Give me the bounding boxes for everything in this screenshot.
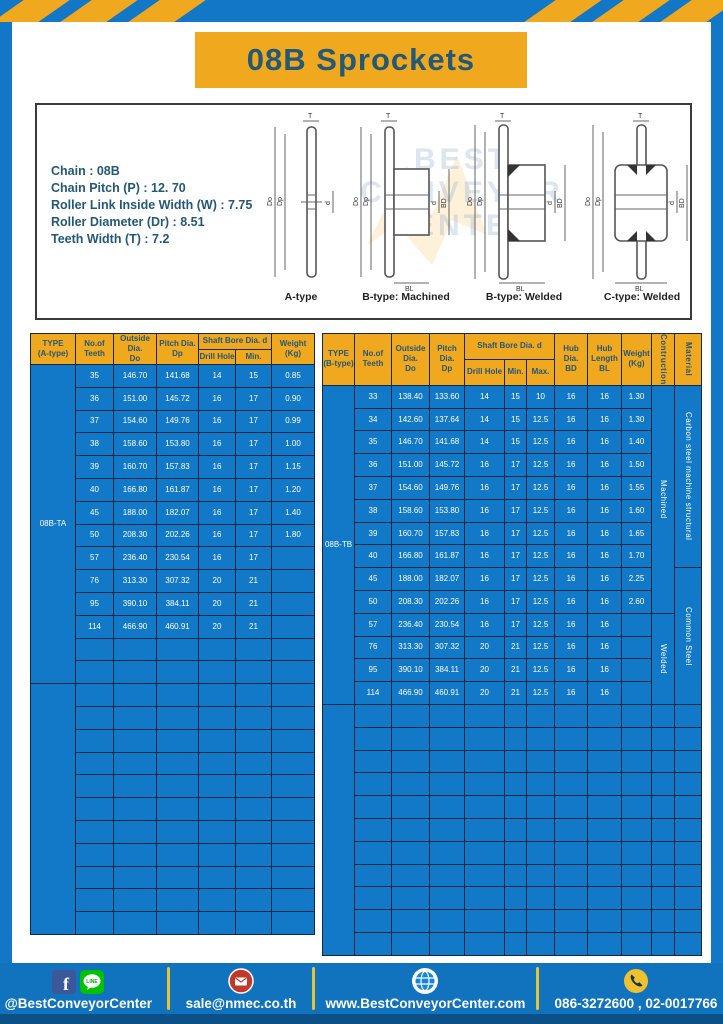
data-cell — [527, 773, 555, 796]
data-cell: 16 — [465, 477, 505, 500]
data-cell — [505, 750, 527, 773]
data-cell: 16 — [555, 499, 588, 522]
data-cell — [588, 796, 622, 819]
data-cell — [76, 820, 114, 843]
data-cell — [236, 820, 272, 843]
data-cell — [430, 932, 465, 955]
data-cell — [355, 704, 392, 727]
data-cell: 384.11 — [157, 592, 199, 615]
diagram-label: B-type: Machined — [362, 291, 450, 303]
data-cell — [157, 889, 199, 912]
data-cell: 17 — [505, 499, 527, 522]
data-cell — [588, 750, 622, 773]
data-cell — [505, 773, 527, 796]
data-cell: 16 — [555, 613, 588, 636]
data-cell: 15 — [505, 385, 527, 408]
data-cell — [236, 866, 272, 889]
data-cell: 16 — [465, 568, 505, 591]
svg-text:d: d — [325, 201, 332, 205]
footer-divider — [312, 967, 315, 1010]
data-cell: 12.5 — [527, 682, 555, 705]
data-cell — [675, 910, 702, 933]
chain-specs: Chain : 08B Chain Pitch (P) : 12. 70 Rol… — [51, 163, 252, 248]
data-cell — [272, 752, 315, 775]
bottom-accent-strip — [0, 1014, 723, 1024]
data-cell: 313.30 — [114, 570, 157, 593]
data-cell — [199, 661, 236, 684]
data-cell — [675, 887, 702, 910]
data-cell: 50 — [76, 524, 114, 547]
data-cell: 17 — [505, 568, 527, 591]
data-cell: 15 — [505, 431, 527, 454]
data-cell — [76, 752, 114, 775]
data-cell — [355, 750, 392, 773]
svg-text:T: T — [386, 113, 391, 120]
diagram-b-type-welded: T Do Dp d BD BL — [465, 111, 583, 311]
data-cell — [236, 798, 272, 821]
footer-divider — [536, 967, 539, 1010]
phone-numbers: 086-3272600 , 02-0017766 — [555, 996, 718, 1011]
data-cell — [527, 818, 555, 841]
data-cell — [392, 796, 430, 819]
data-cell — [622, 841, 652, 864]
data-cell — [622, 727, 652, 750]
data-cell: 307.32 — [430, 636, 465, 659]
material-cell: Common Steel — [675, 568, 702, 705]
data-cell: 460.91 — [430, 682, 465, 705]
data-cell — [114, 729, 157, 752]
data-cell — [157, 798, 199, 821]
data-cell — [236, 912, 272, 935]
table-row: 76313.30307.32202112.51616 — [323, 636, 702, 659]
data-cell — [114, 638, 157, 661]
data-cell: 145.72 — [430, 454, 465, 477]
data-cell — [392, 887, 430, 910]
data-cell — [157, 661, 199, 684]
data-cell — [675, 704, 702, 727]
col-header-weight: Weight (Kg) — [622, 334, 652, 386]
col-header-min: Min. — [505, 359, 527, 385]
data-cell: 466.90 — [392, 682, 430, 705]
empty-row — [323, 932, 702, 955]
svg-text:Dp: Dp — [363, 197, 370, 206]
empty-row — [323, 841, 702, 864]
data-cell — [272, 729, 315, 752]
data-cell — [236, 843, 272, 866]
data-cell: 0.99 — [272, 410, 315, 433]
website-section: www.BestConveyorCenter.com — [325, 963, 525, 1014]
data-cell: 1.40 — [272, 501, 315, 524]
col-header-teeth: No.of Teeth — [76, 334, 114, 365]
data-cell: 160.70 — [114, 456, 157, 479]
data-cell — [430, 910, 465, 933]
data-cell — [114, 706, 157, 729]
data-cell — [465, 773, 505, 796]
data-cell: 157.83 — [157, 456, 199, 479]
top-striped-bar — [0, 0, 723, 22]
data-cell — [555, 864, 588, 887]
data-cell — [622, 773, 652, 796]
data-cell: 1.40 — [622, 431, 652, 454]
data-cell: 16 — [199, 478, 236, 501]
data-cell — [236, 729, 272, 752]
data-cell — [76, 912, 114, 935]
data-cell: 57 — [76, 547, 114, 570]
data-cell — [272, 615, 315, 638]
data-cell: 17 — [236, 433, 272, 456]
data-cell — [588, 932, 622, 955]
data-cell: 16 — [199, 501, 236, 524]
data-cell: 158.60 — [392, 499, 430, 522]
data-cell: 153.80 — [157, 433, 199, 456]
data-cell — [588, 818, 622, 841]
data-cell: 16 — [555, 659, 588, 682]
empty-row — [31, 684, 315, 707]
table-row: 08B-TB33138.40133.6014151016161.30Machin… — [323, 385, 702, 408]
svg-text:d: d — [669, 201, 676, 205]
data-cell — [236, 638, 272, 661]
data-cell — [157, 752, 199, 775]
data-cell: 390.10 — [114, 592, 157, 615]
data-cell: 16 — [199, 410, 236, 433]
data-cell: 14 — [465, 431, 505, 454]
data-cell: 0.85 — [272, 365, 315, 388]
diagram-label: A-type — [285, 291, 318, 303]
data-cell: 12.5 — [527, 454, 555, 477]
data-cell: 17 — [505, 591, 527, 614]
svg-text:T: T — [308, 113, 313, 120]
data-cell — [588, 727, 622, 750]
empty-row — [323, 910, 702, 933]
diagram-label: B-type: Welded — [486, 291, 562, 303]
data-cell — [652, 818, 675, 841]
data-cell — [505, 910, 527, 933]
data-cell — [465, 887, 505, 910]
data-cell: 16 — [588, 591, 622, 614]
diagram-c-type-welded: T Do Dp d BD — [583, 111, 692, 311]
data-cell — [465, 818, 505, 841]
data-cell: 40 — [76, 478, 114, 501]
svg-text:Do: Do — [467, 197, 474, 206]
data-cell — [555, 796, 588, 819]
data-cell — [355, 910, 392, 933]
data-cell — [236, 706, 272, 729]
data-cell: 16 — [588, 522, 622, 545]
data-cell: 16 — [199, 433, 236, 456]
data-cell: 182.07 — [157, 501, 199, 524]
data-cell — [114, 661, 157, 684]
data-cell: 16 — [555, 568, 588, 591]
data-cell: 236.40 — [114, 547, 157, 570]
data-cell — [430, 750, 465, 773]
data-cell — [652, 841, 675, 864]
col-header-outside-dia: Outside Dia. Do — [392, 334, 430, 386]
data-cell: 21 — [505, 659, 527, 682]
data-cell — [114, 843, 157, 866]
data-cell — [465, 910, 505, 933]
data-cell: 16 — [465, 499, 505, 522]
data-cell — [76, 706, 114, 729]
data-cell — [622, 932, 652, 955]
type-group-cell: 08B-TB — [323, 385, 355, 704]
data-cell — [355, 932, 392, 955]
data-cell — [430, 887, 465, 910]
data-cell: 39 — [76, 456, 114, 479]
empty-row — [323, 704, 702, 727]
data-cell — [505, 864, 527, 887]
data-cell — [505, 841, 527, 864]
data-cell: 57 — [355, 613, 392, 636]
data-cell — [76, 843, 114, 866]
data-cell — [652, 864, 675, 887]
data-cell — [505, 704, 527, 727]
data-cell — [555, 841, 588, 864]
data-cell: 166.80 — [114, 478, 157, 501]
data-cell — [114, 912, 157, 935]
data-cell — [652, 796, 675, 819]
data-cell: 16 — [555, 408, 588, 431]
data-cell: 12.5 — [527, 613, 555, 636]
data-cell: 16 — [588, 636, 622, 659]
data-cell: 166.80 — [392, 545, 430, 568]
data-cell — [430, 864, 465, 887]
data-cell: 16 — [588, 385, 622, 408]
data-cell — [588, 841, 622, 864]
data-cell — [157, 729, 199, 752]
data-cell — [652, 773, 675, 796]
empty-row — [323, 750, 702, 773]
data-cell: 20 — [199, 615, 236, 638]
data-cell — [527, 796, 555, 819]
data-cell — [355, 796, 392, 819]
social-handle: @BestConveyorCenter — [5, 996, 152, 1011]
data-cell: 36 — [76, 387, 114, 410]
data-cell — [114, 820, 157, 843]
data-cell: 16 — [555, 591, 588, 614]
footer-divider — [167, 967, 170, 1010]
data-cell — [272, 798, 315, 821]
data-cell: 16 — [199, 524, 236, 547]
data-cell — [272, 843, 315, 866]
data-cell — [114, 775, 157, 798]
data-cell — [114, 752, 157, 775]
data-cell — [465, 932, 505, 955]
data-cell: 12.5 — [527, 591, 555, 614]
table-row: 35146.70141.68141512.516161.40 — [323, 431, 702, 454]
data-cell — [236, 684, 272, 707]
data-cell: 12.5 — [527, 431, 555, 454]
table-row: 50208.30202.26161712.516162.60 — [323, 591, 702, 614]
data-cell — [157, 775, 199, 798]
data-cell — [588, 864, 622, 887]
empty-row — [323, 818, 702, 841]
data-cell — [272, 638, 315, 661]
data-cell — [652, 704, 675, 727]
table-row: 39160.70157.83161712.516161.65 — [323, 522, 702, 545]
data-cell: 138.40 — [392, 385, 430, 408]
data-cell — [76, 775, 114, 798]
data-cell — [114, 684, 157, 707]
data-cell — [555, 932, 588, 955]
data-cell — [622, 659, 652, 682]
data-cell — [272, 592, 315, 615]
data-cell — [675, 864, 702, 887]
data-cell — [675, 750, 702, 773]
data-cell: 208.30 — [114, 524, 157, 547]
diagram-b-type-machined: T Do Dp d BD BL B-type: Machined — [347, 111, 465, 311]
data-cell: 17 — [236, 387, 272, 410]
data-cell — [76, 661, 114, 684]
empty-row — [323, 727, 702, 750]
data-cell — [272, 547, 315, 570]
data-cell — [199, 912, 236, 935]
data-cell — [675, 727, 702, 750]
data-cell: 34 — [355, 408, 392, 431]
empty-row — [323, 887, 702, 910]
data-cell — [355, 887, 392, 910]
data-cell: 16 — [199, 456, 236, 479]
table-row: 38158.60153.80161712.516161.60 — [323, 499, 702, 522]
data-cell: 1.15 — [272, 456, 315, 479]
globe-icon — [412, 968, 438, 994]
data-cell: 188.00 — [114, 501, 157, 524]
data-cell: 149.76 — [430, 477, 465, 500]
data-cell: 17 — [236, 410, 272, 433]
data-cell — [76, 684, 114, 707]
data-cell: 12.5 — [527, 636, 555, 659]
data-cell: 45 — [76, 501, 114, 524]
data-cell: 16 — [588, 431, 622, 454]
data-cell — [272, 889, 315, 912]
data-cell — [622, 682, 652, 705]
data-cell — [392, 818, 430, 841]
data-cell: 137.64 — [430, 408, 465, 431]
data-cell: 45 — [355, 568, 392, 591]
col-header-type: TYPE (B-type) — [323, 334, 355, 386]
svg-text:Dp: Dp — [477, 197, 484, 206]
data-cell: 12.5 — [527, 477, 555, 500]
data-cell — [199, 866, 236, 889]
data-cell: 2.60 — [622, 591, 652, 614]
data-cell: 466.90 — [114, 615, 157, 638]
data-cell: 16 — [588, 477, 622, 500]
data-cell: 16 — [588, 408, 622, 431]
data-cell: 33 — [355, 385, 392, 408]
data-cell: 1.00 — [272, 433, 315, 456]
data-cell: 307.32 — [157, 570, 199, 593]
data-cell — [527, 841, 555, 864]
data-cell: 0.90 — [272, 387, 315, 410]
data-cell — [272, 570, 315, 593]
data-cell — [272, 912, 315, 935]
data-cell — [622, 613, 652, 636]
table-row: 57236.40230.54161712.51616Welded — [323, 613, 702, 636]
data-cell — [199, 729, 236, 752]
data-cell — [392, 910, 430, 933]
data-cell: 21 — [505, 636, 527, 659]
data-cell: 16 — [555, 431, 588, 454]
col-header-material: Material — [675, 334, 702, 386]
col-header-outside-dia: Outside Dia. Do — [114, 334, 157, 365]
data-cell — [157, 684, 199, 707]
data-cell: 133.60 — [430, 385, 465, 408]
data-cell: 313.30 — [392, 636, 430, 659]
data-cell — [588, 704, 622, 727]
data-cell — [392, 727, 430, 750]
data-cell: 1.60 — [622, 499, 652, 522]
data-cell: 1.30 — [622, 408, 652, 431]
col-header-drill-hole: Drill Hole — [199, 349, 236, 365]
data-cell — [675, 932, 702, 955]
data-cell: 16 — [588, 568, 622, 591]
data-cell — [622, 704, 652, 727]
data-cell: 142.60 — [392, 408, 430, 431]
data-cell: 114 — [355, 682, 392, 705]
data-cell — [157, 638, 199, 661]
data-cell — [114, 798, 157, 821]
data-cell: 17 — [505, 454, 527, 477]
data-cell: 151.00 — [114, 387, 157, 410]
data-cell — [555, 773, 588, 796]
social-section: f LINE @BestConveyorCenter — [0, 963, 157, 1014]
contact-footer: f LINE @BestConveyorCenter sale@nmec.co.… — [0, 963, 723, 1014]
col-header-weight: Weight (Kg) — [272, 334, 315, 365]
data-cell: 1.50 — [622, 454, 652, 477]
data-cell: 141.68 — [430, 431, 465, 454]
data-cell — [114, 866, 157, 889]
data-cell: 16 — [588, 454, 622, 477]
data-cell: 146.70 — [392, 431, 430, 454]
data-cell: 15 — [505, 408, 527, 431]
diagram-label: C-type: Welded — [604, 291, 680, 303]
data-cell: 12.5 — [527, 545, 555, 568]
data-cell — [272, 866, 315, 889]
data-cell — [199, 684, 236, 707]
data-cell — [355, 773, 392, 796]
data-cell — [675, 773, 702, 796]
data-cell — [622, 864, 652, 887]
data-cell: 202.26 — [430, 591, 465, 614]
type-group-cell — [323, 704, 355, 955]
data-cell — [236, 752, 272, 775]
empty-row — [323, 864, 702, 887]
data-cell — [355, 727, 392, 750]
data-cell — [622, 636, 652, 659]
data-cell — [430, 727, 465, 750]
data-cell: 160.70 — [392, 522, 430, 545]
data-cell — [527, 910, 555, 933]
data-cell: 2.25 — [622, 568, 652, 591]
svg-text:d: d — [547, 201, 554, 205]
data-cell — [76, 889, 114, 912]
diagram-a-type: T Do Dp d A-type — [255, 111, 347, 311]
material-cell: Carbon steel machine structural — [675, 385, 702, 567]
svg-text:LINE: LINE — [87, 979, 99, 985]
data-cell — [236, 661, 272, 684]
data-cell — [588, 910, 622, 933]
data-cell: 17 — [236, 524, 272, 547]
col-header-shaft-bore: Shaft Bore Dia. d — [465, 334, 555, 360]
svg-text:Do: Do — [585, 197, 592, 206]
data-cell: 208.30 — [392, 591, 430, 614]
data-cell: 161.87 — [157, 478, 199, 501]
data-cell: 39 — [355, 522, 392, 545]
col-header-min: Min. — [236, 349, 272, 365]
data-cell — [272, 820, 315, 843]
data-cell: 12.5 — [527, 522, 555, 545]
data-cell: 157.83 — [430, 522, 465, 545]
data-cell: 149.76 — [157, 410, 199, 433]
